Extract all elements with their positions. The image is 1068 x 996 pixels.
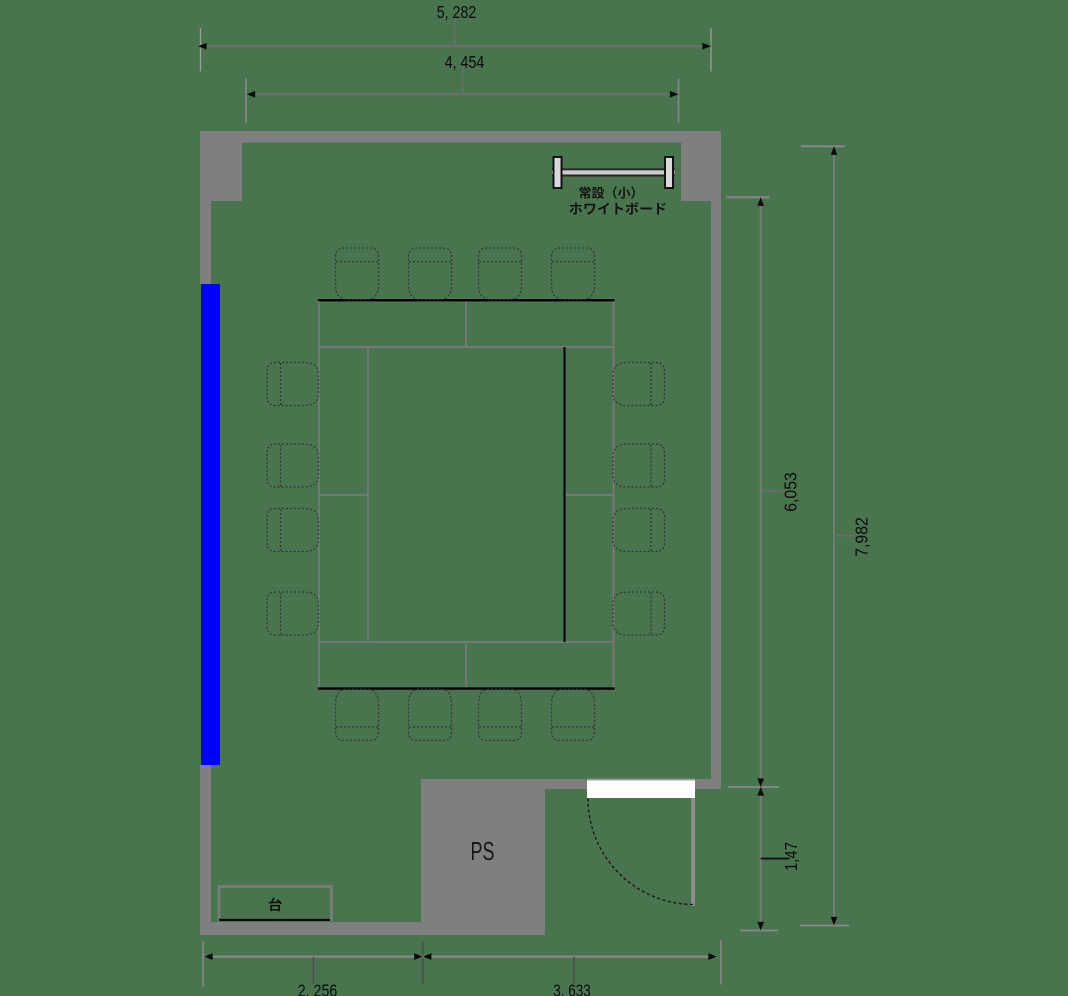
svg-text:2, 256: 2, 256	[298, 980, 338, 996]
svg-text:6,053: 6,053	[781, 472, 801, 512]
svg-text:3, 633: 3, 633	[553, 980, 591, 996]
svg-text:PS: PS	[471, 836, 495, 866]
svg-text:1,47: 1,47	[781, 842, 801, 871]
svg-text:4, 454: 4, 454	[445, 52, 485, 72]
svg-text:7,982: 7,982	[852, 517, 872, 557]
svg-text:5, 282: 5, 282	[437, 2, 477, 22]
